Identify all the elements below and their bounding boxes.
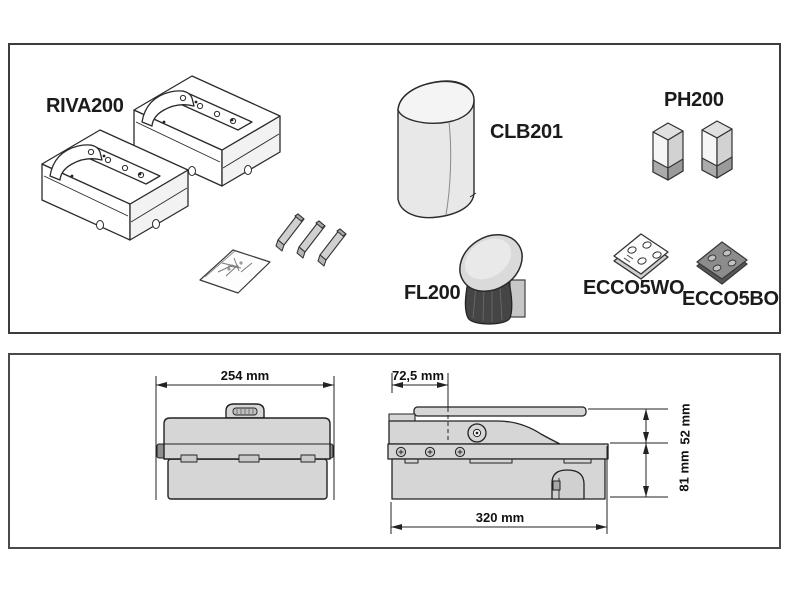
front-view-drawing — [157, 404, 333, 499]
catalog-page: RIVA200 CLB201 PH200 FL200 ECCO5WO ECCO5… — [0, 0, 790, 593]
clb201-label: CLB201 — [490, 122, 563, 142]
lamp-bracket — [510, 280, 525, 317]
ecco5wo-label: ECCO5WO — [583, 278, 684, 298]
ph200-photocells-illustration — [653, 121, 732, 180]
front-lid — [164, 418, 330, 459]
height-81-value: 81 mm — [678, 450, 691, 491]
ph200-label: PH200 — [664, 90, 724, 110]
riva200-label: RIVA200 — [46, 96, 124, 116]
ecco5wo-transmitter-illustration — [614, 234, 668, 279]
ecco5bo-label: ECCO5BO — [682, 289, 779, 309]
side-base-flange — [388, 444, 608, 459]
height-52-value: 52 mm — [679, 403, 692, 444]
height-81-dimension — [610, 443, 668, 497]
width-254-value: 254 mm — [221, 369, 269, 382]
screws-bag-illustration — [200, 250, 270, 293]
offset-72-5-value: 72,5 mm — [392, 369, 444, 382]
fl200-label: FL200 — [404, 283, 460, 303]
fl200-flashing-lamp-illustration — [449, 223, 533, 324]
side-view-drawing — [388, 407, 608, 499]
front-lower-body — [168, 459, 327, 499]
height-52-dimension — [588, 409, 668, 443]
clb201-control-unit-illustration — [398, 81, 476, 218]
length-320-value: 320 mm — [476, 511, 524, 524]
fixing-pins-illustration — [276, 214, 346, 266]
ecco5bo-transmitter-illustration — [697, 242, 747, 284]
side-arm-bar — [414, 407, 586, 416]
